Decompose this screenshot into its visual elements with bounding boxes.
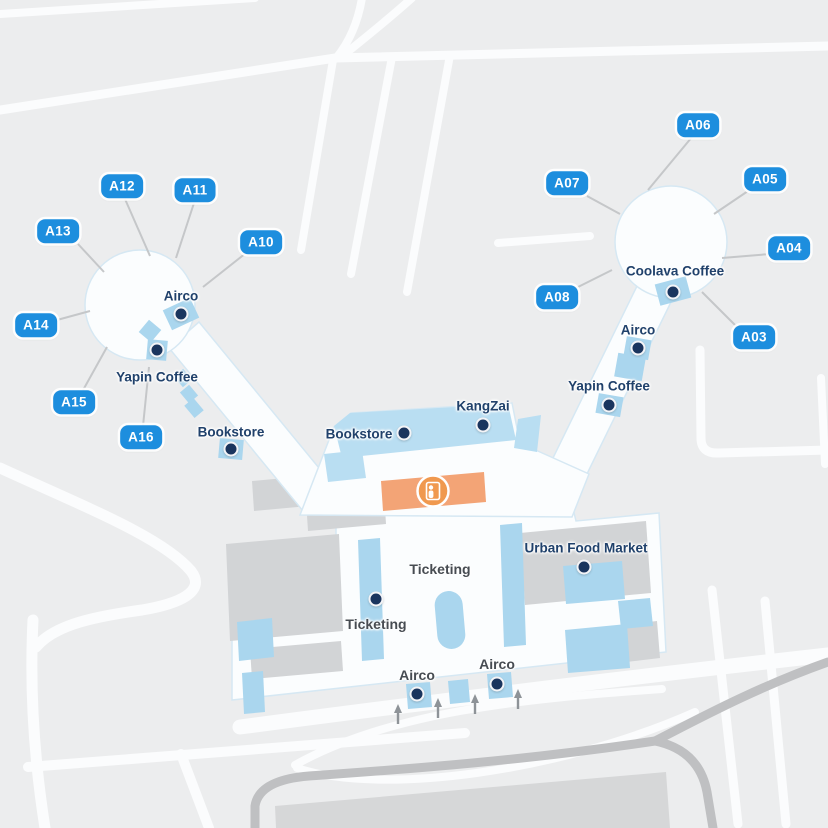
poi-label-ticketing-west: Ticketing: [345, 616, 406, 632]
poi-label-ticketing-main: Ticketing: [409, 561, 470, 577]
gate-badge-a11[interactable]: A11: [175, 178, 216, 202]
gate-badge-a16[interactable]: A16: [120, 425, 162, 449]
poi-label-yapin-coffee-east: Yapin Coffee: [568, 379, 650, 394]
gate-badge-a13[interactable]: A13: [37, 219, 79, 243]
poi-label-kangzai: KangZai: [456, 399, 509, 414]
poi-dot-yapin-coffee-west[interactable]: [150, 343, 165, 358]
poi-dot-airco-east[interactable]: [631, 341, 646, 356]
poi-label-bookstore-central: Bookstore: [326, 427, 393, 442]
poi-dot-urban-food-market[interactable]: [577, 560, 592, 575]
poi-label-airco-entrance-2: Airco: [479, 656, 515, 672]
poi-label-yapin-coffee-west: Yapin Coffee: [116, 370, 198, 385]
poi-dot-airco-west[interactable]: [174, 307, 189, 322]
poi-dot-bookstore-central[interactable]: [397, 426, 412, 441]
poi-dot-airco-entrance-2[interactable]: [490, 677, 505, 692]
poi-dot-ticketing-west[interactable]: [369, 592, 384, 607]
gate-badge-a14[interactable]: A14: [15, 313, 57, 337]
gate-badge-a15[interactable]: A15: [53, 390, 95, 414]
poi-label-urban-food-market: Urban Food Market: [524, 541, 647, 556]
poi-label-airco-entrance-1: Airco: [399, 667, 435, 683]
poi-label-coolava-coffee: Coolava Coffee: [626, 264, 724, 279]
gate-badge-a06[interactable]: A06: [677, 113, 719, 137]
gate-badge-a05[interactable]: A05: [744, 167, 786, 191]
poi-dot-airco-entrance-1[interactable]: [410, 687, 425, 702]
security-checkpoint-icon: [418, 476, 449, 507]
gate-badge-a08[interactable]: A08: [536, 285, 578, 309]
poi-dot-kangzai[interactable]: [476, 418, 491, 433]
poi-label-airco-west: Airco: [164, 289, 199, 304]
poi-label-bookstore-west: Bookstore: [198, 425, 265, 440]
gate-badge-a03[interactable]: A03: [733, 325, 775, 349]
poi-label-airco-east: Airco: [621, 323, 656, 338]
poi-dot-coolava-coffee[interactable]: [666, 285, 681, 300]
gate-badge-a10[interactable]: A10: [240, 230, 282, 254]
airport-terminal-map: A03 A04 A05 A06 A07 A08 A10 A11 A12 A13 …: [0, 0, 828, 828]
gate-badge-a04[interactable]: A04: [768, 236, 810, 260]
poi-dot-bookstore-west[interactable]: [224, 442, 239, 457]
gate-badge-a07[interactable]: A07: [546, 171, 588, 195]
gate-badge-a12[interactable]: A12: [101, 174, 143, 198]
poi-dot-yapin-coffee-east[interactable]: [602, 398, 617, 413]
